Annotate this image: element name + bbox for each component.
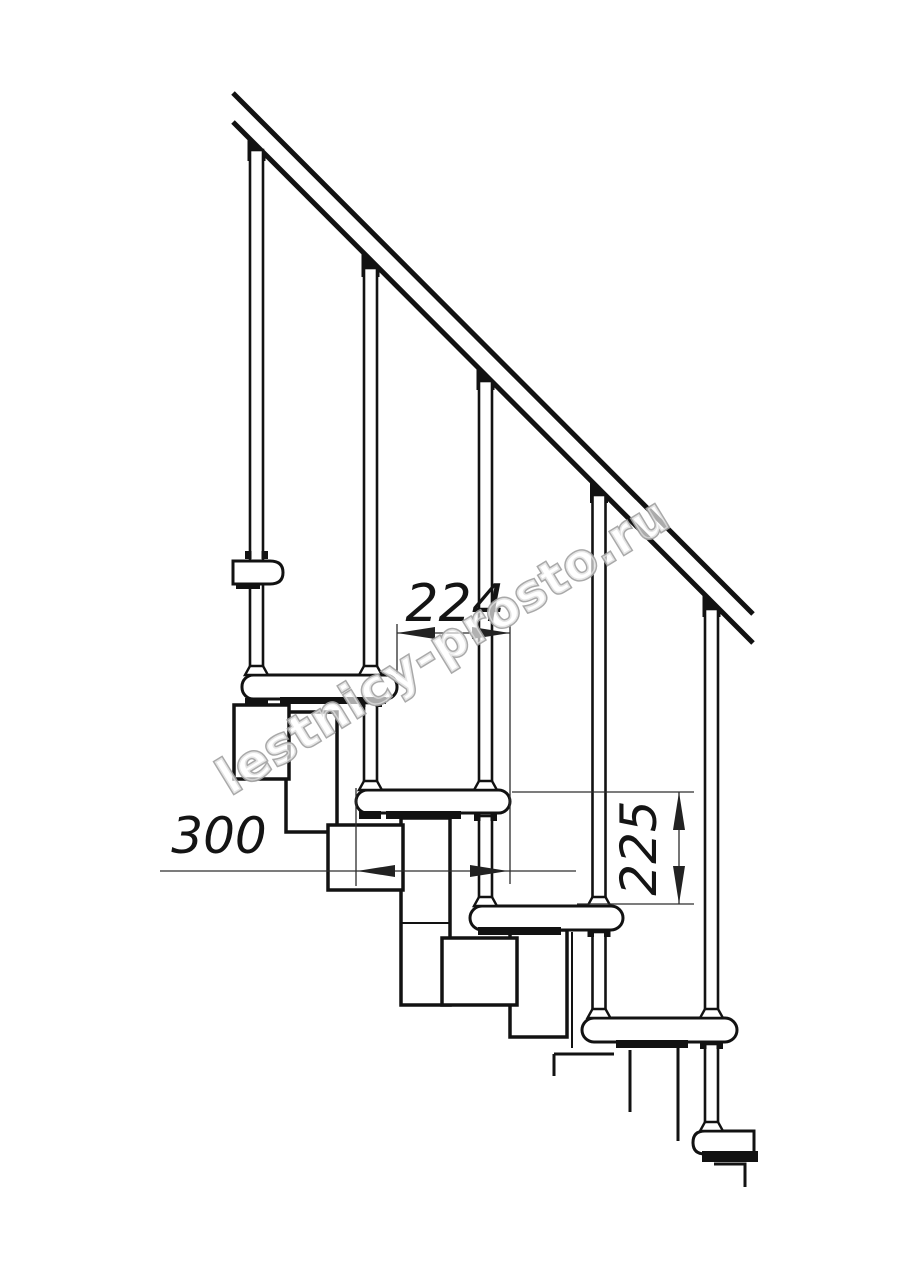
- clamp-t2a: [245, 698, 268, 706]
- clamp-t3a: [359, 811, 381, 819]
- clamp-t5: [616, 1040, 688, 1048]
- treads: [233, 561, 754, 1154]
- tread-3: [356, 790, 510, 813]
- foot: [474, 781, 497, 790]
- foot: [588, 897, 611, 906]
- baluster-5: [705, 609, 718, 1011]
- foot: [700, 1122, 723, 1131]
- tread-1-end-view: [233, 561, 283, 584]
- clamp-t3b: [386, 811, 461, 819]
- foot: [700, 1009, 723, 1018]
- clamp-t1: [236, 583, 260, 589]
- foot: [359, 781, 382, 790]
- tread-6-end-view: [693, 1131, 754, 1154]
- nose-strut-5: [705, 1044, 718, 1124]
- tread-5: [582, 1018, 737, 1042]
- staircase-technical-drawing: 224 300 225 lestnicy-prosto.ru: [0, 0, 914, 1280]
- watermark-text: lestnicy-prosto.ru: [207, 486, 680, 806]
- module-box-3: [442, 938, 517, 1005]
- clamp-t4: [478, 927, 561, 935]
- dim-label-riser-height: 225: [610, 800, 668, 895]
- baluster-1: [250, 150, 263, 669]
- arrow-225-up: [673, 792, 685, 830]
- foot: [474, 897, 497, 906]
- foot: [245, 666, 268, 675]
- dim-label-tread-depth: 300: [171, 807, 266, 865]
- arrow-225-down: [673, 866, 685, 904]
- tread-4: [470, 906, 623, 930]
- drawing-canvas: 224 300 225 lestnicy-prosto.ru: [0, 0, 914, 1280]
- nose-strut-3: [479, 816, 492, 899]
- foot: [588, 1009, 611, 1018]
- baluster-2: [364, 268, 377, 668]
- nose-strut-4: [593, 932, 606, 1011]
- bottom-step-cut: [714, 1164, 745, 1187]
- clamp-t6: [702, 1151, 758, 1162]
- module-box-2: [328, 825, 403, 890]
